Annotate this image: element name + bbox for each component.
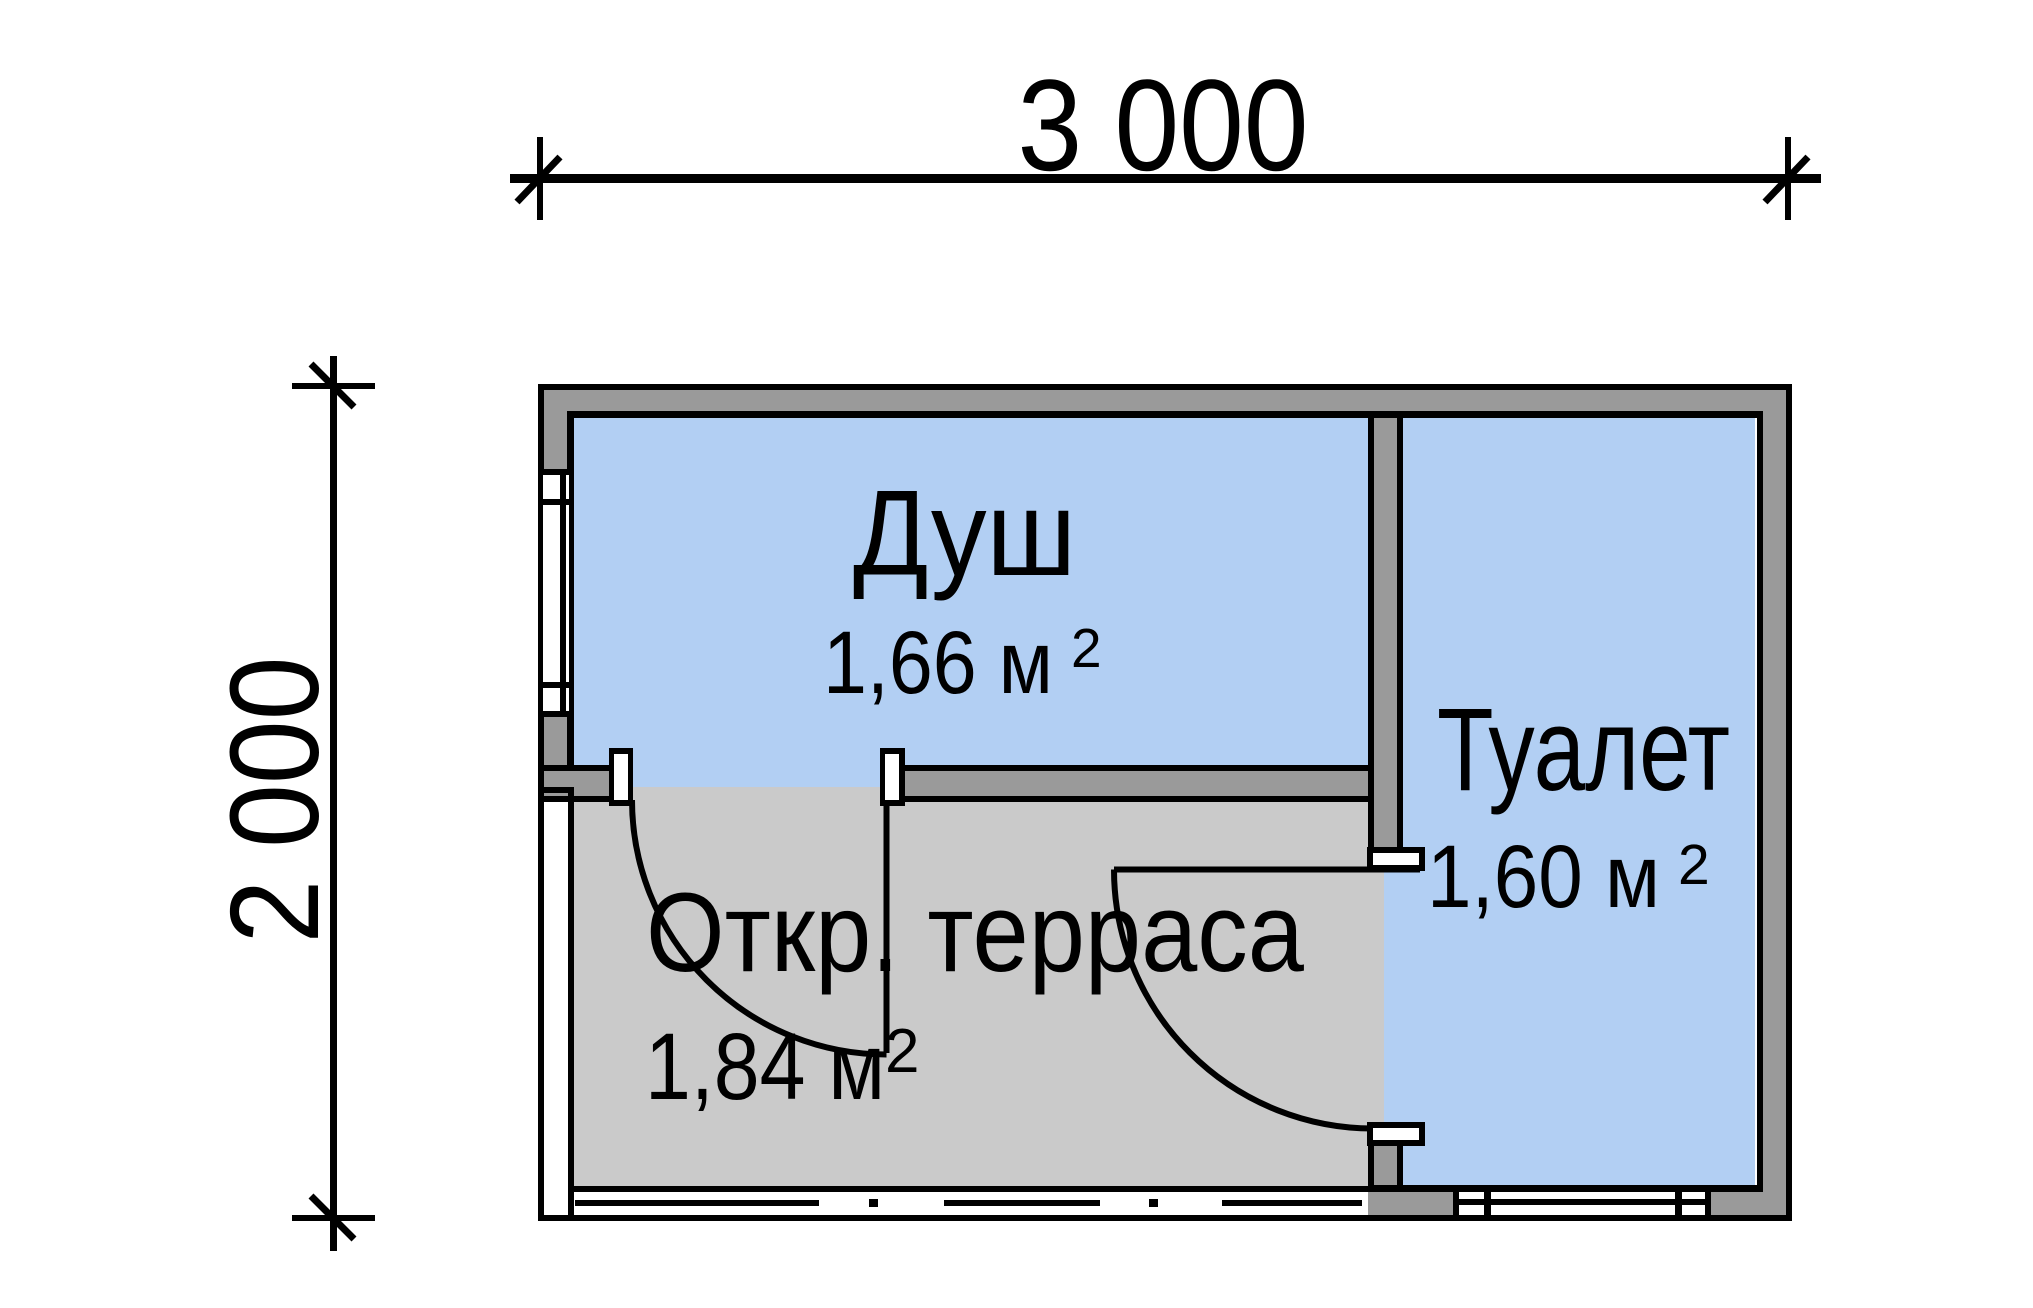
svg-text:2: 2 (1678, 833, 1710, 897)
svg-text:1,66 м: 1,66 м (823, 612, 1053, 712)
svg-text:2: 2 (1071, 617, 1102, 679)
svg-text:2: 2 (885, 1017, 919, 1086)
svg-text:Откр. терраса: Откр. терраса (646, 870, 1305, 995)
svg-text:2 000: 2 000 (204, 657, 345, 944)
svg-text:Туалет: Туалет (1437, 684, 1730, 816)
svg-text:Душ: Душ (853, 465, 1076, 601)
svg-text:3 000: 3 000 (1018, 52, 1309, 198)
svg-text:1,84 м: 1,84 м (645, 1014, 885, 1120)
svg-text:1,60 м: 1,60 м (1427, 826, 1660, 926)
